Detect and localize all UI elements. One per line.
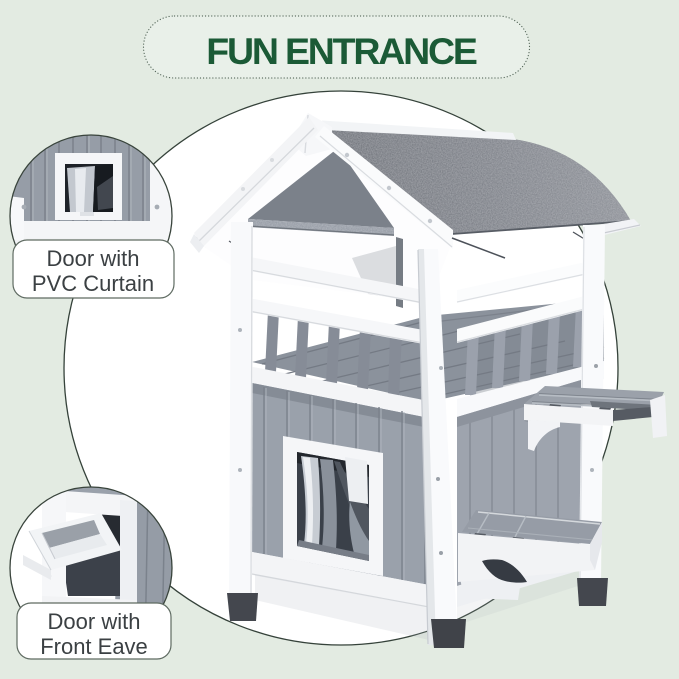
svg-text:FUN ENTRANCE: FUN ENTRANCE xyxy=(206,30,477,72)
svg-text:Door with: Door with xyxy=(47,246,140,271)
svg-text:Front Eave: Front Eave xyxy=(40,634,148,659)
svg-text:Door with: Door with xyxy=(48,609,141,634)
svg-text:PVC Curtain: PVC Curtain xyxy=(32,271,154,296)
